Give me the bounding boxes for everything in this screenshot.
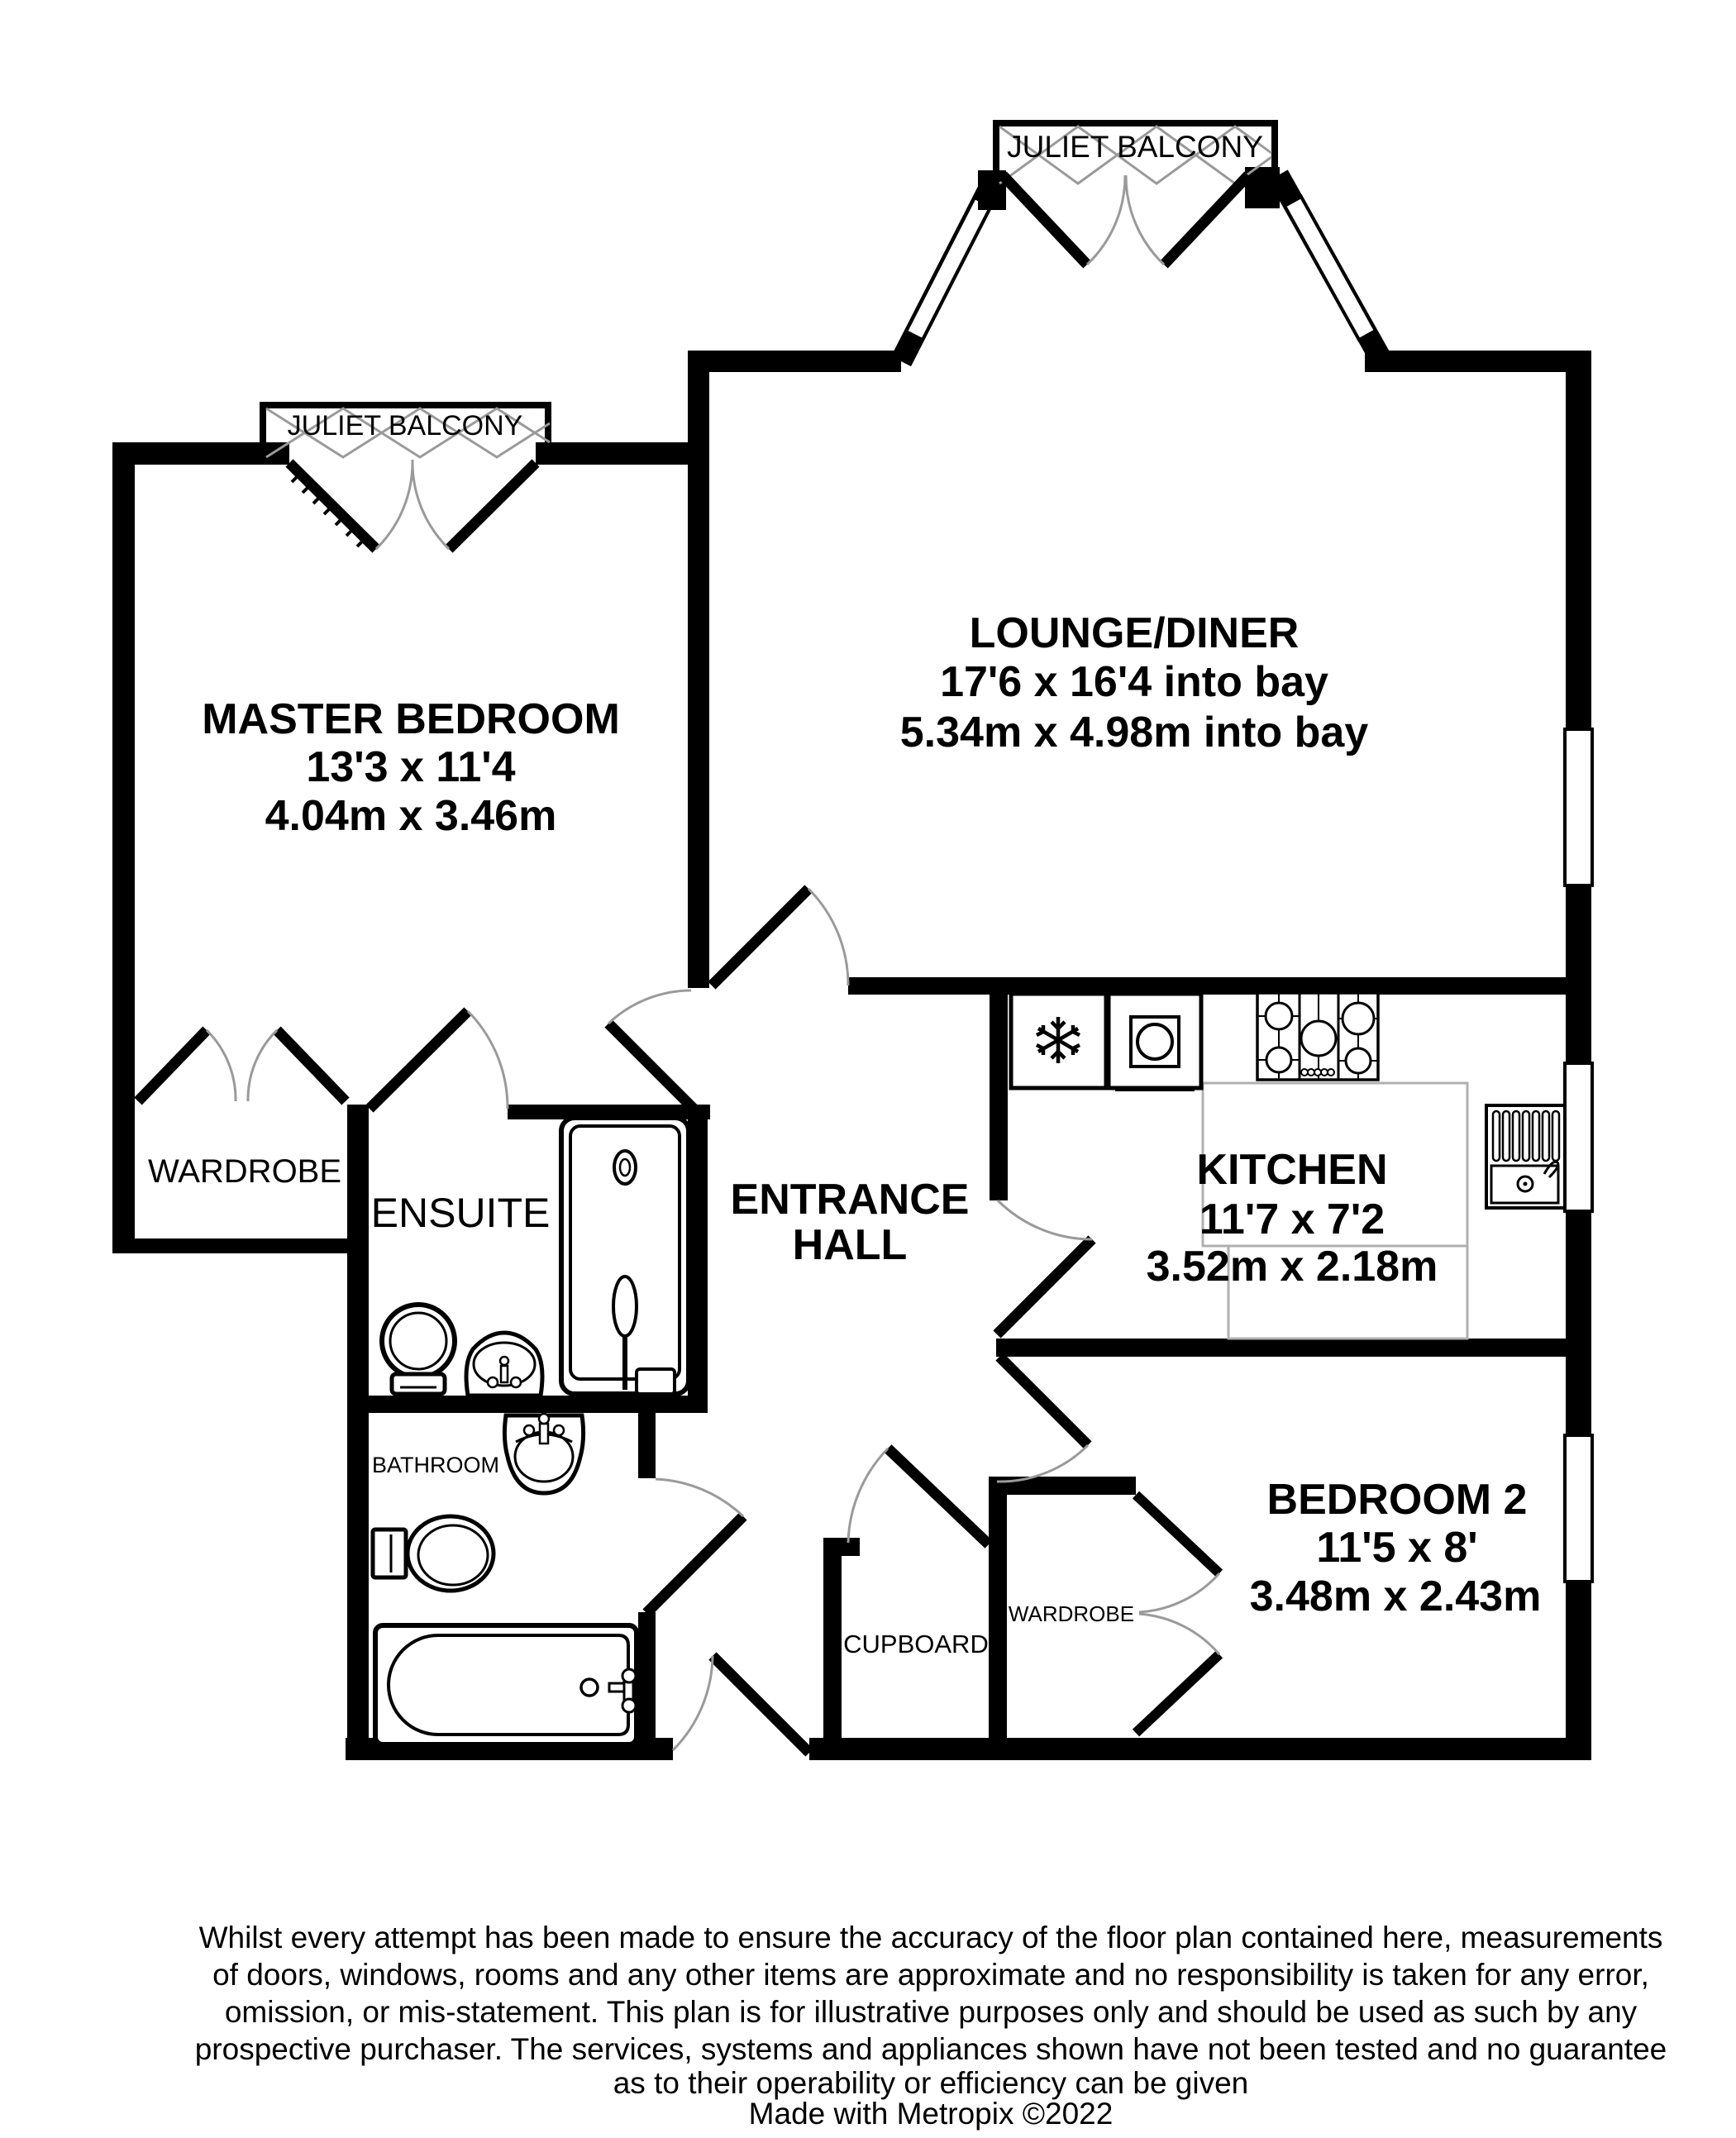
svg-text:Whilst every attempt has been: Whilst every attempt has been made to en… <box>199 1921 1663 1954</box>
svg-text:CUPBOARD: CUPBOARD <box>843 1630 989 1658</box>
svg-text:13'3 x 11'4: 13'3 x 11'4 <box>306 743 515 791</box>
svg-text:3.48m x 2.43m: 3.48m x 2.43m <box>1250 1572 1542 1620</box>
svg-text:omission, or mis-statement. Th: omission, or mis-statement. This plan is… <box>225 1995 1638 2029</box>
svg-text:JULIET BALCONY: JULIET BALCONY <box>1007 130 1263 164</box>
svg-text:JULIET BALCONY: JULIET BALCONY <box>288 410 523 441</box>
svg-text:ENSUITE: ENSUITE <box>371 1190 551 1236</box>
svg-text:MASTER BEDROOM: MASTER BEDROOM <box>202 695 620 743</box>
svg-text:17'6 x 16'4 into bay: 17'6 x 16'4 into bay <box>940 658 1328 706</box>
svg-text:Made with Metropix ©2022: Made with Metropix ©2022 <box>749 2097 1114 2131</box>
svg-text:LOUNGE/DINER: LOUNGE/DINER <box>970 609 1300 657</box>
svg-text:WARDROBE: WARDROBE <box>1009 1601 1134 1626</box>
svg-text:5.34m x 4.98m into bay: 5.34m x 4.98m into bay <box>900 709 1369 756</box>
svg-text:BATHROOM: BATHROOM <box>372 1453 499 1477</box>
svg-text:3.52m x 2.18m: 3.52m x 2.18m <box>1147 1243 1438 1291</box>
svg-text:4.04m x 3.46m: 4.04m x 3.46m <box>265 792 557 840</box>
svg-text:WARDROBE: WARDROBE <box>148 1153 341 1190</box>
svg-text:as to their operability or eff: as to their operability or efficiency ca… <box>613 2066 1249 2100</box>
svg-text:prospective purchaser. The ser: prospective purchaser. The services, sys… <box>195 2032 1667 2066</box>
svg-text:ENTRANCE: ENTRANCE <box>731 1176 970 1224</box>
svg-text:11'7 x 7'2: 11'7 x 7'2 <box>1199 1195 1385 1243</box>
svg-text:of doors, windows, rooms and a: of doors, windows, rooms and any other i… <box>212 1958 1649 1992</box>
svg-text:11'5 x 8': 11'5 x 8' <box>1316 1524 1477 1572</box>
svg-text:BEDROOM 2: BEDROOM 2 <box>1267 1476 1528 1524</box>
svg-text:KITCHEN: KITCHEN <box>1196 1146 1387 1194</box>
svg-text:HALL: HALL <box>793 1221 908 1269</box>
